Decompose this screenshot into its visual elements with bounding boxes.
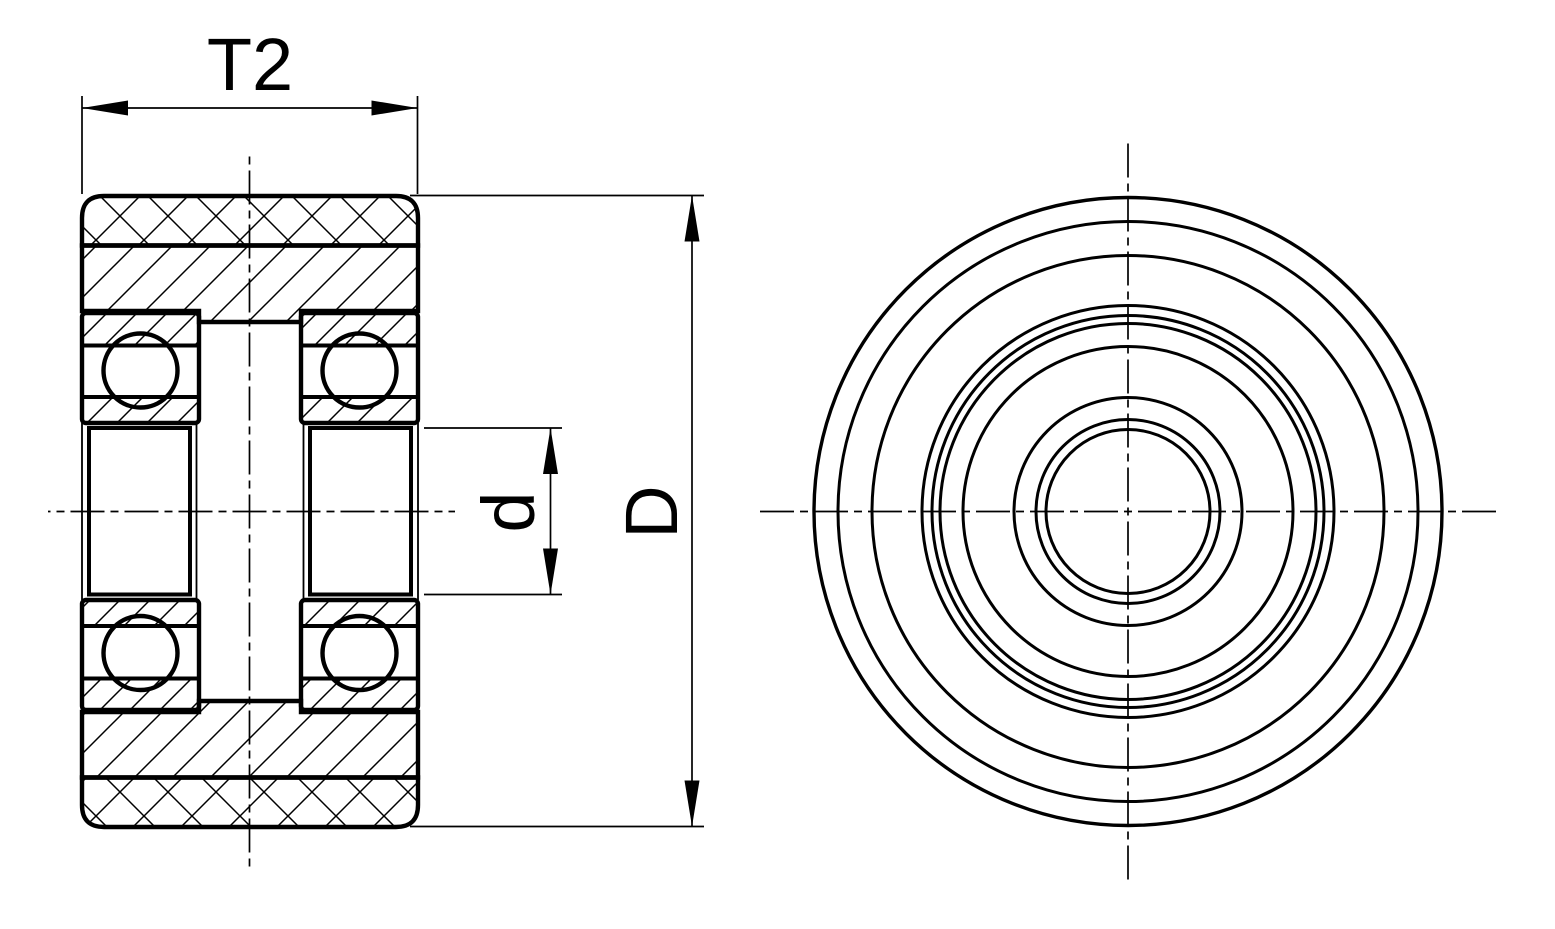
arrow-left (82, 101, 128, 116)
front-view (758, 140, 1497, 884)
outer-ring-section (303, 315, 416, 346)
d-label: d (467, 491, 550, 532)
arrow-up (543, 428, 558, 474)
outer-ring-section (303, 679, 416, 709)
t2-label: T2 (207, 23, 293, 106)
dimension-t2: T2 (82, 23, 418, 194)
bearing-left-bottom (82, 600, 199, 710)
arrow-down (685, 781, 700, 827)
dimension-d: d (424, 428, 562, 595)
bearing-right-bottom (301, 600, 418, 710)
arrow-up (685, 196, 700, 242)
bearing-roller-drawing: T2 d D (0, 0, 1555, 929)
front-view-centerlines (758, 140, 1497, 884)
big-d-label: D (610, 485, 693, 538)
outer-ring-section (84, 679, 197, 709)
bearing-right-top (301, 313, 418, 423)
outer-ring-section (84, 315, 197, 346)
bearing-left-top (82, 313, 199, 423)
arrow-right (372, 101, 418, 116)
technical-drawing-canvas: T2 d D (0, 0, 1555, 929)
arrow-down (543, 549, 558, 595)
section-view: T2 d D (48, 23, 704, 870)
